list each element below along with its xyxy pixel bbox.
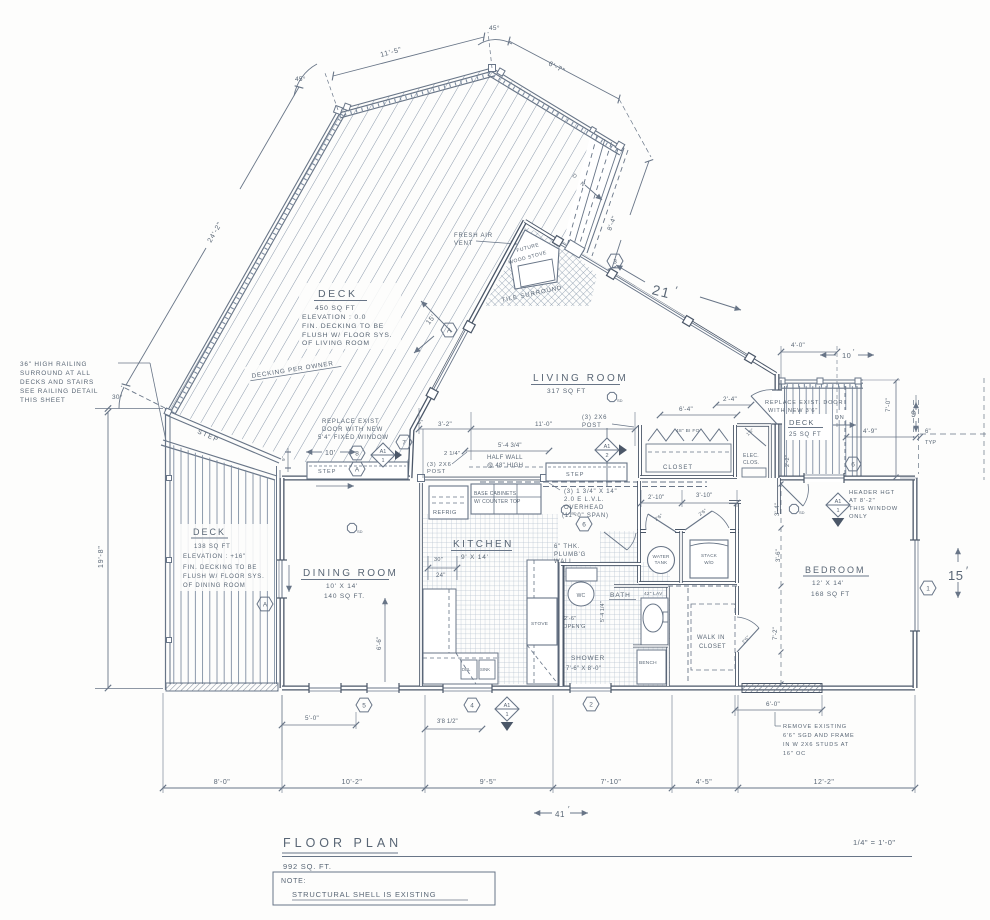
svg-text:DECK: DECK [318,288,358,300]
svg-text:TANK: TANK [655,560,668,565]
svg-text:6'-4": 6'-4" [679,406,693,413]
svg-text:WITH NEW 3'6": WITH NEW 3'6" [768,408,818,414]
svg-text:CLOSET: CLOSET [663,465,693,471]
svg-text:DBL: DBL [462,667,471,672]
svg-text:4: 4 [470,702,474,709]
svg-text:6: 6 [582,521,586,528]
svg-text:4'-0": 4'-0" [791,342,805,349]
svg-text:SINK: SINK [480,667,490,672]
svg-text:5'-4 3/4": 5'-4 3/4" [498,443,522,449]
svg-text:10' X 14': 10' X 14' [326,583,358,590]
svg-text:36" HIGH RAILING: 36" HIGH RAILING [20,361,87,368]
svg-text:REPLACE EXIST: REPLACE EXIST [322,419,379,425]
svg-text:FRESH AIR: FRESH AIR [454,233,493,239]
svg-text:REPLACE EXIST. DOOR: REPLACE EXIST. DOOR [765,400,843,406]
svg-text:5: 5 [362,702,366,709]
svg-text:2: 2 [589,701,593,708]
svg-text:1: 1 [836,508,839,514]
svg-text:138 SQ FT: 138 SQ FT [194,544,231,550]
svg-text:30": 30" [434,557,443,563]
svg-text:DN: DN [835,415,845,421]
svg-text:5'-0": 5'-0" [305,715,319,722]
svg-text:12'-2": 12'-2" [814,779,835,786]
svg-text:SD: SD [617,398,623,403]
svg-text:AT 8'-2": AT 8'-2" [849,498,875,504]
svg-text:(3) 2X6: (3) 2X6 [427,462,452,468]
svg-text:DECKS AND STAIRS: DECKS AND STAIRS [20,379,94,386]
svg-text:HALF WALL: HALF WALL [487,455,523,461]
svg-text:OVERHEAD: OVERHEAD [564,505,604,511]
svg-text:(3) 2X6: (3) 2X6 [582,415,607,421]
svg-text:2'-6": 2'-6" [564,616,576,622]
svg-text:FLUSH W/ FLOOR SYS.: FLUSH W/ FLOOR SYS. [302,332,392,339]
svg-text:9' X 14': 9' X 14' [461,554,489,561]
svg-text:3'-2": 3'-2" [438,421,452,428]
svg-text:A1: A1 [604,444,611,450]
svg-text:12' X 14': 12' X 14' [812,580,844,587]
svg-text:3: 3 [613,258,617,265]
svg-text:STRUCTURAL SHELL IS EXISTING: STRUCTURAL SHELL IS EXISTING [292,890,436,899]
svg-text:7: 7 [402,439,406,446]
svg-text:TYP: TYP [925,440,936,446]
svg-text:(11'-0" SPAN): (11'-0" SPAN) [562,513,609,519]
svg-text:KITCHEN: KITCHEN [453,539,514,550]
svg-text:9'-5": 9'-5" [480,779,496,786]
svg-text:HEADER HGT: HEADER HGT [849,490,895,496]
svg-text:OF DINING ROOM: OF DINING ROOM [183,583,246,589]
svg-text:CLOSET: CLOSET [699,644,726,650]
svg-text:ELEVATION : +16": ELEVATION : +16" [183,554,246,560]
svg-text:ELEC.: ELEC. [743,453,759,459]
svg-text:4'-5": 4'-5" [696,779,712,786]
svg-text:FLOOR PLAN: FLOOR PLAN [283,836,402,850]
svg-text:OPEN'G: OPEN'G [563,624,586,630]
svg-text:ELEVATION : 0.0: ELEVATION : 0.0 [302,314,366,321]
svg-text:ONLY: ONLY [849,514,868,520]
svg-text:45°: 45° [489,24,500,32]
svg-text:168 SQ FT: 168 SQ FT [811,591,850,598]
svg-text:REMOVE EXISTING: REMOVE EXISTING [783,724,847,730]
svg-text:42" LAV: 42" LAV [644,591,663,597]
svg-text:A1: A1 [835,499,842,505]
svg-text:STEP: STEP [318,469,336,475]
svg-text:2: 2 [605,453,608,459]
svg-text:1: 1 [926,585,930,592]
svg-text:SHOWER: SHOWER [571,655,605,662]
svg-text:DINING ROOM: DINING ROOM [303,568,398,579]
svg-text:DECK: DECK [789,418,815,427]
svg-text:VENT: VENT [454,241,473,247]
svg-text:6: 6 [851,461,855,468]
svg-text:REFRIG: REFRIG [433,510,457,516]
svg-text:10': 10' [325,450,336,457]
svg-text:LIVING ROOM: LIVING ROOM [533,373,628,384]
svg-text:SD: SD [357,529,363,534]
svg-text:5'-4 1/4": 5'-4 1/4" [600,601,606,622]
svg-text:SD: SD [799,510,805,515]
svg-text:15: 15 [948,568,963,583]
svg-text:992 SQ. FT.: 992 SQ. FT. [283,862,332,871]
svg-text:19'-8": 19'-8" [98,545,105,568]
svg-text:A: A [447,327,452,334]
svg-text:A: A [355,466,360,473]
svg-text:4'-9": 4'-9" [863,428,877,435]
svg-text:SEE RAILING DETAIL: SEE RAILING DETAIL [20,388,98,395]
svg-text:W/D: W/D [704,560,714,565]
svg-text:THIS WINDOW: THIS WINDOW [849,506,898,512]
svg-text:6'-6": 6'-6" [377,637,383,650]
svg-text:′: ′ [966,565,969,577]
svg-text:′: ′ [568,805,570,814]
svg-text:2'-4": 2'-4" [723,396,737,403]
svg-text:6'6" SGD AND FRAME: 6'6" SGD AND FRAME [783,733,855,739]
svg-text:POST: POST [427,469,446,475]
svg-text:@ 48" HIGH: @ 48" HIGH [487,463,523,469]
svg-text:140 SQ FT.: 140 SQ FT. [324,593,365,600]
svg-text:7'-6" X 8'-0": 7'-6" X 8'-0" [566,666,601,672]
svg-text:3'8 1/2": 3'8 1/2" [437,719,458,725]
svg-text:45°: 45° [295,75,306,83]
svg-text:W/ COUNTER TOP: W/ COUNTER TOP [474,499,521,505]
svg-text:CLOS.: CLOS. [743,460,760,466]
svg-text:STEP: STEP [566,472,584,478]
svg-text:16" OC: 16" OC [783,751,806,757]
svg-text:1: 1 [381,458,384,464]
svg-text:POST: POST [582,423,602,429]
svg-text:7'-2": 7'-2" [773,627,779,640]
svg-text:BASE CABINETS: BASE CABINETS [474,491,517,497]
svg-text:48" BI FO: 48" BI FO [676,428,700,434]
svg-text:(3) 1 3/4" X 14": (3) 1 3/4" X 14" [564,489,617,495]
svg-text:7'-10": 7'-10" [601,779,622,786]
svg-text:THIS SHEET: THIS SHEET [20,397,66,404]
svg-text:25 SQ FT: 25 SQ FT [789,432,821,438]
svg-text:10'-2": 10'-2" [342,779,363,786]
svg-text:′: ′ [853,349,855,356]
svg-text:BEDROOM: BEDROOM [805,565,866,575]
svg-text:7'-0": 7'-0" [885,398,892,412]
svg-text:BENCH: BENCH [639,660,657,666]
svg-text:6": 6" [418,420,423,426]
svg-text:24": 24" [436,573,446,579]
svg-text:WC: WC [577,593,586,599]
svg-text:STOVE: STOVE [531,621,548,627]
svg-text:317 SQ FT: 317 SQ FT [547,388,586,395]
svg-text:FLUSH W/ FLOOR SYS.: FLUSH W/ FLOOR SYS. [183,574,265,580]
svg-text:WALL: WALL [554,559,573,565]
svg-text:FIN. DECKING TO BE: FIN. DECKING TO BE [302,323,384,330]
svg-text:11'-0": 11'-0" [535,421,552,428]
svg-text:DOOR WITH NEW: DOOR WITH NEW [322,427,383,433]
svg-text:SURROUND AT ALL: SURROUND AT ALL [20,370,91,377]
svg-text:IN W 2X6 STUDS AT: IN W 2X6 STUDS AT [783,742,849,748]
svg-text:2 1/4": 2 1/4" [444,451,460,457]
svg-text:3'-10": 3'-10" [696,493,712,499]
svg-text:1: 1 [505,712,508,718]
svg-text:450 SQ FT: 450 SQ FT [315,305,355,312]
svg-text:2.0 E L.V.L.: 2.0 E L.V.L. [564,497,604,503]
svg-text:OF LIVING ROOM: OF LIVING ROOM [302,340,370,347]
svg-text:A: A [263,601,268,608]
svg-text:WALK IN: WALK IN [697,635,725,641]
svg-text:NOTE:: NOTE: [281,878,306,885]
svg-text:3'-4": 3'-4" [775,503,781,516]
svg-text:2'-2": 2'-2" [785,455,791,467]
svg-text:9": 9" [281,456,287,461]
svg-text:A1: A1 [504,703,511,709]
svg-text:FIN. DECKING TO BE: FIN. DECKING TO BE [183,565,257,571]
svg-text:BATH: BATH [610,592,631,599]
svg-text:1/4" = 1'-0": 1/4" = 1'-0" [853,838,896,847]
svg-text:DECK: DECK [193,527,226,537]
svg-text:A1: A1 [380,449,387,455]
svg-text:PLUMB'G: PLUMB'G [554,552,586,558]
svg-text:8'-0": 8'-0" [214,779,230,786]
svg-text:10: 10 [842,351,851,360]
svg-text:6" THK.: 6" THK. [554,544,580,550]
svg-text:41: 41 [555,810,565,819]
svg-text:6'-0": 6'-0" [766,701,780,708]
svg-text:5'4" FIXED WINDOW: 5'4" FIXED WINDOW [318,435,389,441]
svg-text:30°: 30° [112,393,123,401]
svg-text:STACK: STACK [701,553,718,558]
svg-text:8: 8 [355,450,359,457]
svg-text:2'-10": 2'-10" [648,495,664,501]
svg-text:WATER: WATER [652,554,670,559]
